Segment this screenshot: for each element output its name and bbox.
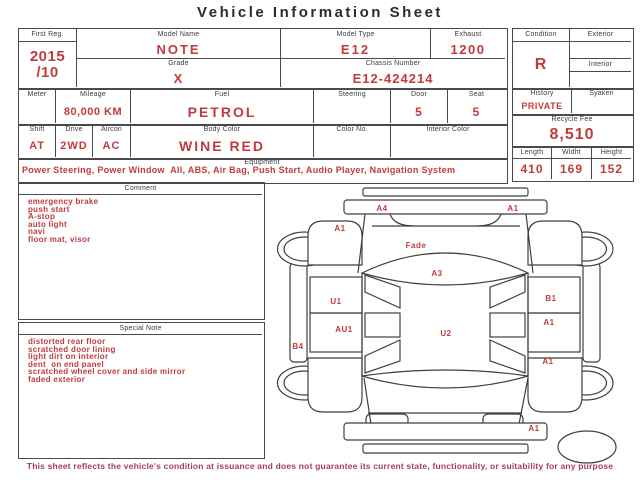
field-exhaust: Exhaust 1200 (431, 29, 505, 59)
rear-window (362, 370, 528, 388)
shift-value: AT (19, 135, 55, 157)
recycle-fee-table: Recycle Fee 8,510 (512, 114, 634, 148)
diagram-label: Fade (406, 241, 427, 250)
history-label: History (513, 89, 571, 99)
comment-cell: Comment emergency brake push start A-sto… (19, 183, 262, 317)
condition-label: Condition (513, 29, 570, 42)
field-shift: Shift AT (19, 125, 56, 157)
height-label: Height (592, 147, 631, 159)
windshield (362, 253, 528, 285)
model-name-label: Model Name (77, 29, 280, 40)
diagram-label: U2 (440, 329, 451, 338)
field-color-no: Color No. (314, 125, 391, 157)
special-note-text: distorted rear floor scratched door lini… (19, 335, 262, 456)
history-value: PRIVATE (513, 99, 571, 113)
field-syaken: Syaken (572, 89, 631, 113)
steering-label: Steering (314, 89, 390, 100)
diagram-label: U1 (330, 297, 341, 306)
field-width: Widht 169 (552, 147, 592, 179)
interior-label: Interior (570, 58, 631, 72)
field-model-name: Model Name NOTE (77, 29, 281, 59)
field-steering: Steering (314, 89, 391, 123)
interior-color-label: Interior Color (391, 125, 505, 135)
width-label: Widht (552, 147, 591, 159)
rear-bumper-lower-bar (363, 444, 528, 453)
spare-tire (558, 431, 616, 463)
recycle-fee-label: Recycle Fee (513, 115, 631, 125)
diagram-label: A1 (507, 204, 518, 213)
window-rear-left (365, 340, 400, 373)
equipment-table: Equipment Power Steering, Power Window A… (18, 158, 508, 184)
door-value: 5 (391, 100, 447, 123)
body-color-value: WINE RED (131, 135, 313, 157)
length-value: 410 (513, 159, 551, 179)
window-mid-right (490, 313, 525, 337)
first-reg-value: 2015 /10 (19, 42, 77, 87)
door-label: Door (391, 89, 447, 100)
field-drive: Drive 2WD (56, 125, 93, 157)
diagram-label: A1 (543, 318, 554, 327)
diagram-label: A4 (376, 204, 387, 213)
dimensions-table: Length 410 Widht 169 Height 152 (512, 146, 634, 182)
color-no-label: Color No. (314, 125, 390, 135)
diagram-label: A3 (431, 269, 442, 278)
diagram-label: B1 (545, 294, 556, 303)
field-fuel: Fuel PETROL (131, 89, 314, 123)
condition-value: R (513, 42, 570, 87)
field-meter: Meter (19, 89, 56, 123)
grade-value: X (77, 69, 280, 87)
exterior-value (570, 42, 631, 58)
shift-label: Shift (19, 125, 55, 135)
field-body-color: Body Color WINE RED (131, 125, 314, 157)
width-value: 169 (552, 159, 591, 179)
drive-label: Drive (56, 125, 92, 135)
field-mileage: Mileage 80,000 KM (56, 89, 131, 123)
fender-rear-right (528, 358, 582, 412)
field-equipment: Equipment Power Steering, Power Window A… (19, 159, 505, 181)
comment-box: Comment emergency brake push start A-sto… (18, 182, 265, 320)
exterior-label: Exterior (570, 29, 631, 42)
body-color-label: Body Color (131, 125, 313, 135)
field-recycle-fee: Recycle Fee 8,510 (513, 115, 631, 145)
door-panel-front-left (310, 277, 362, 313)
window-mid-left (365, 313, 400, 337)
aircon-value: AC (93, 135, 130, 157)
diagram-label: B4 (292, 342, 303, 351)
chassis-number-value: E12-424214 (281, 69, 505, 87)
vehicle-information-sheet: { "title": "Vehicle Information Sheet", … (0, 0, 640, 480)
field-door: Door 5 (391, 89, 448, 123)
equipment-value: Power Steering, Power Window All, ABS, A… (19, 166, 505, 181)
interior-color-value (391, 135, 505, 157)
disclaimer-text: This sheet reflects the vehicle's condit… (0, 461, 640, 471)
diagram-label: A1 (334, 224, 345, 233)
exhaust-value: 1200 (431, 40, 505, 58)
diagram-label: A1 (542, 357, 553, 366)
syaken-value (572, 99, 631, 113)
grade-label: Grade (77, 59, 280, 69)
model-name-value: NOTE (77, 40, 280, 58)
field-aircon: Aircon AC (93, 125, 131, 157)
recycle-fee-value: 8,510 (513, 125, 631, 145)
fender-rear-left (308, 358, 362, 412)
fuel-value: PETROL (131, 100, 313, 123)
mileage-value: 80,000 KM (56, 100, 130, 123)
field-condition: Condition R (513, 29, 570, 87)
field-chassis-number: Chassis Number E12-424214 (281, 59, 505, 87)
first-reg-label: First Reg. (19, 29, 77, 42)
meter-value (19, 100, 55, 123)
field-interior-color: Interior Color (391, 125, 505, 157)
field-model-type: Model Type E12 (281, 29, 431, 59)
condition-table: Condition R Exterior Interior (512, 28, 634, 90)
drivetrain-table: Shift AT Drive 2WD Aircon AC Body Color … (18, 124, 508, 160)
special-note-box: Special Note distorted rear floor scratc… (18, 322, 265, 459)
height-value: 152 (592, 159, 631, 179)
comment-text: emergency brake push start A-stop auto l… (19, 195, 262, 317)
field-seat: Seat 5 (448, 89, 505, 123)
field-history: History PRIVATE (513, 89, 572, 113)
headlight-arcs (390, 214, 501, 226)
cabin-sides (362, 273, 528, 376)
field-exterior-interior: Exterior Interior (570, 29, 631, 87)
length-label: Length (513, 147, 551, 159)
meter-label: Meter (19, 89, 55, 100)
exhaust-label: Exhaust (431, 29, 505, 40)
model-type-value: E12 (281, 40, 430, 58)
history-table: History PRIVATE Syaken (512, 88, 634, 116)
fuel-label: Fuel (131, 89, 313, 100)
color-no-value (314, 135, 390, 157)
rear-bumper-bar (344, 423, 547, 440)
aircon-label: Aircon (93, 125, 130, 135)
diagram-label: AU1 (335, 325, 353, 334)
syaken-label: Syaken (572, 89, 631, 99)
field-length: Length 410 (513, 147, 552, 179)
drive-value: 2WD (56, 135, 92, 157)
mileage-table: Meter Mileage 80,000 KM Fuel PETROL Stee… (18, 88, 508, 126)
fender-front-right (528, 221, 582, 265)
field-height: Height 152 (592, 147, 631, 179)
interior-value (570, 72, 631, 87)
window-rear-right (490, 340, 525, 373)
seat-value: 5 (448, 100, 505, 123)
rocker-rail-right (583, 263, 600, 362)
chassis-number-label: Chassis Number (281, 59, 505, 69)
comment-label: Comment (19, 183, 262, 195)
diagram-label: A1 (528, 424, 539, 433)
field-first-reg: First Reg. 2015 /10 (19, 29, 77, 87)
page-title: Vehicle Information Sheet (0, 4, 640, 21)
car-diagram: A4 A1 A1 Fade A3 U1 B1 AU1 A1 U2 B4 A1 A… (270, 184, 640, 466)
steering-value (314, 100, 390, 123)
vehicle-identity-table: First Reg. 2015 /10 Model Name NOTE Grad… (18, 28, 508, 90)
front-bumper-upper-bar (363, 188, 528, 196)
special-note-label: Special Note (19, 323, 262, 335)
special-note-cell: Special Note distorted rear floor scratc… (19, 323, 262, 456)
field-grade: Grade X (77, 59, 281, 87)
mileage-label: Mileage (56, 89, 130, 100)
seat-label: Seat (448, 89, 505, 100)
model-type-label: Model Type (281, 29, 430, 40)
